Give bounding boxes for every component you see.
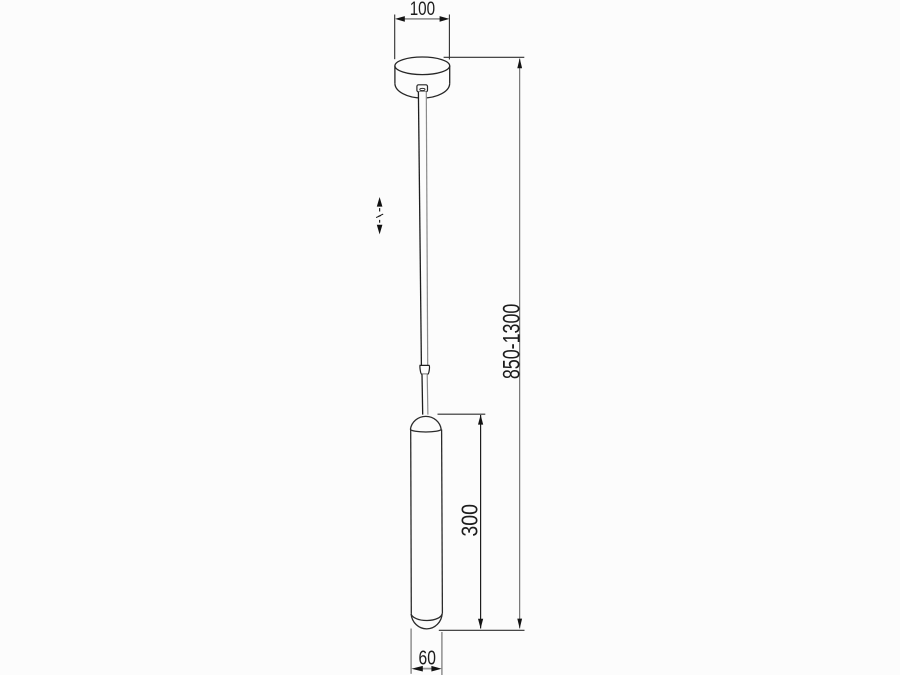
svg-text:100: 100 xyxy=(410,0,435,19)
svg-text:850-1300: 850-1300 xyxy=(498,304,525,380)
svg-text:300: 300 xyxy=(457,504,483,537)
svg-text:60: 60 xyxy=(419,647,436,669)
